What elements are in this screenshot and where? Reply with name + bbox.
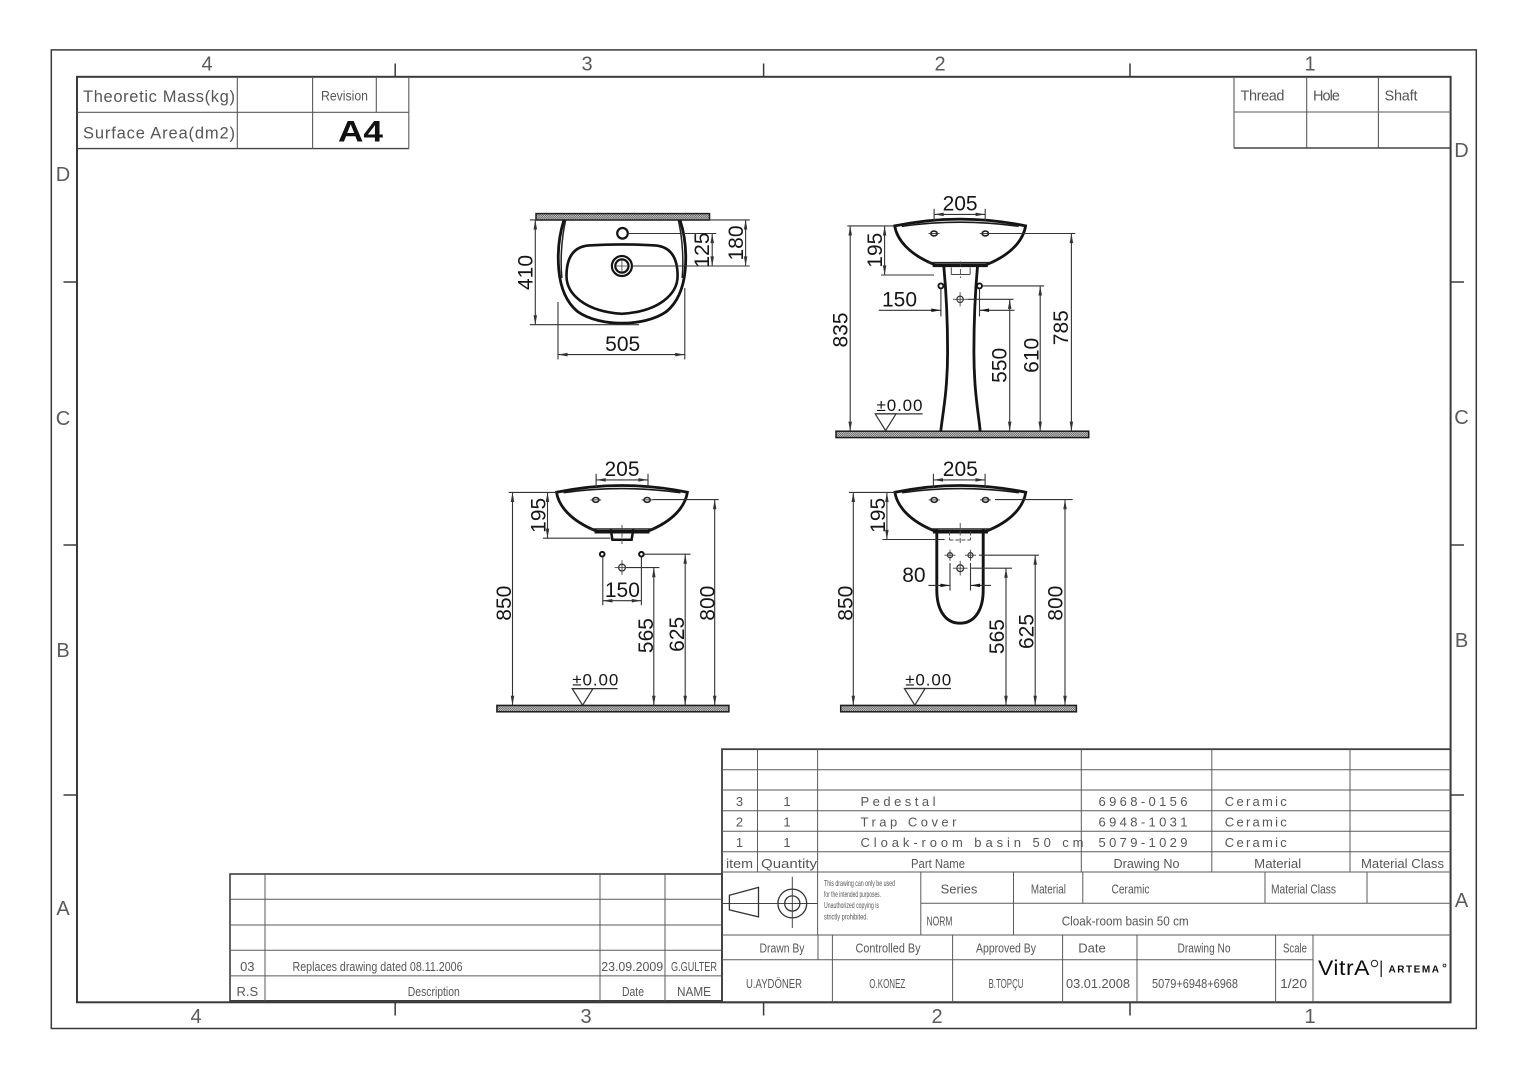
svg-text:Drawing No: Drawing No [1114, 856, 1180, 871]
svg-text:±0.00: ±0.00 [905, 671, 951, 690]
svg-text:Thread: Thread [1241, 89, 1285, 105]
svg-text:A: A [1455, 890, 1469, 912]
svg-text:B: B [1455, 630, 1468, 652]
svg-text:5079-1029: 5079-1029 [1099, 835, 1188, 850]
svg-text:O.KONEZ: O.KONEZ [869, 976, 905, 991]
svg-text:Ceramic: Ceramic [1225, 815, 1288, 830]
svg-text:Cloak-room basin 50 cm: Cloak-room basin 50 cm [1062, 914, 1189, 929]
svg-text:565: 565 [635, 618, 658, 653]
svg-text:This drawing can only be used: This drawing can only be used [824, 879, 895, 888]
svg-text:150: 150 [605, 579, 640, 602]
svg-text:D: D [56, 164, 70, 186]
svg-text:625: 625 [1015, 614, 1038, 649]
svg-text:1: 1 [783, 794, 790, 809]
svg-text:Material: Material [1031, 882, 1066, 897]
svg-text:1: 1 [783, 835, 790, 850]
svg-text:3: 3 [581, 54, 592, 76]
svg-text:505: 505 [605, 333, 640, 356]
svg-text:1: 1 [736, 835, 743, 850]
svg-text:Shaft: Shaft [1385, 89, 1418, 105]
svg-text:6968-0156: 6968-0156 [1099, 794, 1188, 809]
svg-text:80: 80 [902, 564, 925, 587]
svg-text:VitrA: VitrA [1318, 957, 1370, 980]
svg-text:B: B [56, 640, 69, 662]
svg-text:6948-1031: 6948-1031 [1099, 815, 1188, 830]
svg-text:Approved By: Approved By [976, 941, 1036, 956]
svg-text:565: 565 [986, 619, 1009, 654]
svg-text:205: 205 [943, 458, 978, 481]
svg-text:850: 850 [835, 586, 858, 621]
svg-text:±0.00: ±0.00 [877, 396, 923, 415]
svg-text:2: 2 [931, 1006, 942, 1028]
svg-text:195: 195 [867, 498, 890, 533]
svg-text:Series: Series [941, 882, 978, 897]
svg-text:Controlled By: Controlled By [856, 941, 921, 956]
svg-text:1: 1 [1304, 1006, 1315, 1028]
svg-text:Drawn By: Drawn By [760, 941, 805, 956]
svg-text:Trap Cover: Trap Cover [861, 815, 958, 830]
svg-text:835: 835 [829, 312, 852, 347]
svg-text:205: 205 [943, 192, 978, 215]
svg-text:800: 800 [696, 586, 719, 621]
svg-text:150: 150 [882, 288, 917, 311]
svg-text:Date: Date [622, 984, 644, 999]
svg-text:195: 195 [864, 233, 887, 268]
svg-text:800: 800 [1045, 586, 1068, 621]
svg-text:195: 195 [527, 498, 550, 533]
svg-text:strictly prohibited.: strictly prohibited. [824, 912, 868, 921]
svg-text:item: item [726, 856, 753, 871]
svg-text:1: 1 [783, 815, 790, 830]
svg-text:Unauthorized copying is: Unauthorized copying is [824, 901, 879, 910]
svg-text:C: C [1454, 407, 1468, 429]
svg-text:850: 850 [493, 586, 516, 621]
svg-text:4: 4 [190, 1006, 201, 1028]
svg-text:5079+6948+6968: 5079+6948+6968 [1152, 976, 1238, 991]
svg-text:R.S: R.S [236, 984, 258, 999]
svg-text:3: 3 [736, 794, 743, 809]
svg-text:Drawing No: Drawing No [1178, 941, 1231, 956]
svg-text:A4: A4 [338, 116, 383, 149]
svg-text:Pedestal: Pedestal [861, 794, 936, 809]
svg-text:Part Name: Part Name [911, 856, 965, 871]
svg-text:Material Class: Material Class [1271, 882, 1336, 897]
svg-text:550: 550 [988, 348, 1011, 383]
svg-text:D: D [1454, 140, 1468, 162]
svg-text:U.AYDÖNER: U.AYDÖNER [746, 976, 802, 991]
svg-text:Material Class: Material Class [1361, 856, 1444, 871]
svg-text:180: 180 [725, 225, 748, 260]
svg-text:03.01.2008: 03.01.2008 [1066, 976, 1130, 991]
svg-text:Description: Description [408, 984, 460, 999]
svg-text:C: C [56, 408, 70, 430]
svg-text:205: 205 [604, 458, 639, 481]
svg-text:2: 2 [934, 54, 945, 76]
svg-text:ARTEMA: ARTEMA [1389, 964, 1441, 976]
svg-text:for the intended purposes.: for the intended purposes. [824, 890, 881, 899]
svg-text:Ceramic: Ceramic [1225, 794, 1288, 809]
svg-text:Date: Date [1078, 941, 1105, 956]
svg-text:Quantity: Quantity [761, 856, 818, 871]
svg-text:Hole: Hole [1313, 89, 1340, 105]
svg-text:Surface Area(dm2): Surface Area(dm2) [83, 124, 235, 142]
svg-text:125: 125 [691, 232, 714, 267]
svg-text:Replaces drawing dated 08.11.2: Replaces drawing dated 08.11.2006 [293, 959, 463, 974]
svg-text:±0.00: ±0.00 [572, 671, 618, 690]
svg-text:Ceramic: Ceramic [1225, 835, 1288, 850]
svg-text:1: 1 [1304, 54, 1315, 76]
svg-text:G.GULTER: G.GULTER [671, 959, 717, 974]
svg-text:23.09.2009: 23.09.2009 [601, 959, 663, 974]
svg-text:625: 625 [666, 617, 689, 652]
svg-text:4: 4 [201, 54, 212, 76]
svg-text:B.TOPÇU: B.TOPÇU [989, 976, 1024, 991]
svg-text:Theoretic Mass(kg): Theoretic Mass(kg) [83, 88, 235, 106]
svg-text:610: 610 [1020, 338, 1043, 373]
svg-text:410: 410 [515, 255, 538, 290]
svg-text:Revision: Revision [321, 88, 368, 104]
svg-text:NAME: NAME [677, 984, 711, 999]
svg-text:Scale: Scale [1283, 941, 1307, 956]
svg-text:3: 3 [580, 1006, 591, 1028]
svg-text:Material: Material [1254, 856, 1301, 871]
svg-text:1/20: 1/20 [1280, 976, 1307, 991]
svg-text:NORM: NORM [927, 914, 953, 929]
svg-text:Ceramic: Ceramic [1112, 882, 1150, 897]
svg-text:2: 2 [736, 815, 743, 830]
svg-text:785: 785 [1050, 310, 1073, 345]
svg-text:03: 03 [240, 959, 254, 974]
svg-text:A: A [56, 898, 70, 920]
